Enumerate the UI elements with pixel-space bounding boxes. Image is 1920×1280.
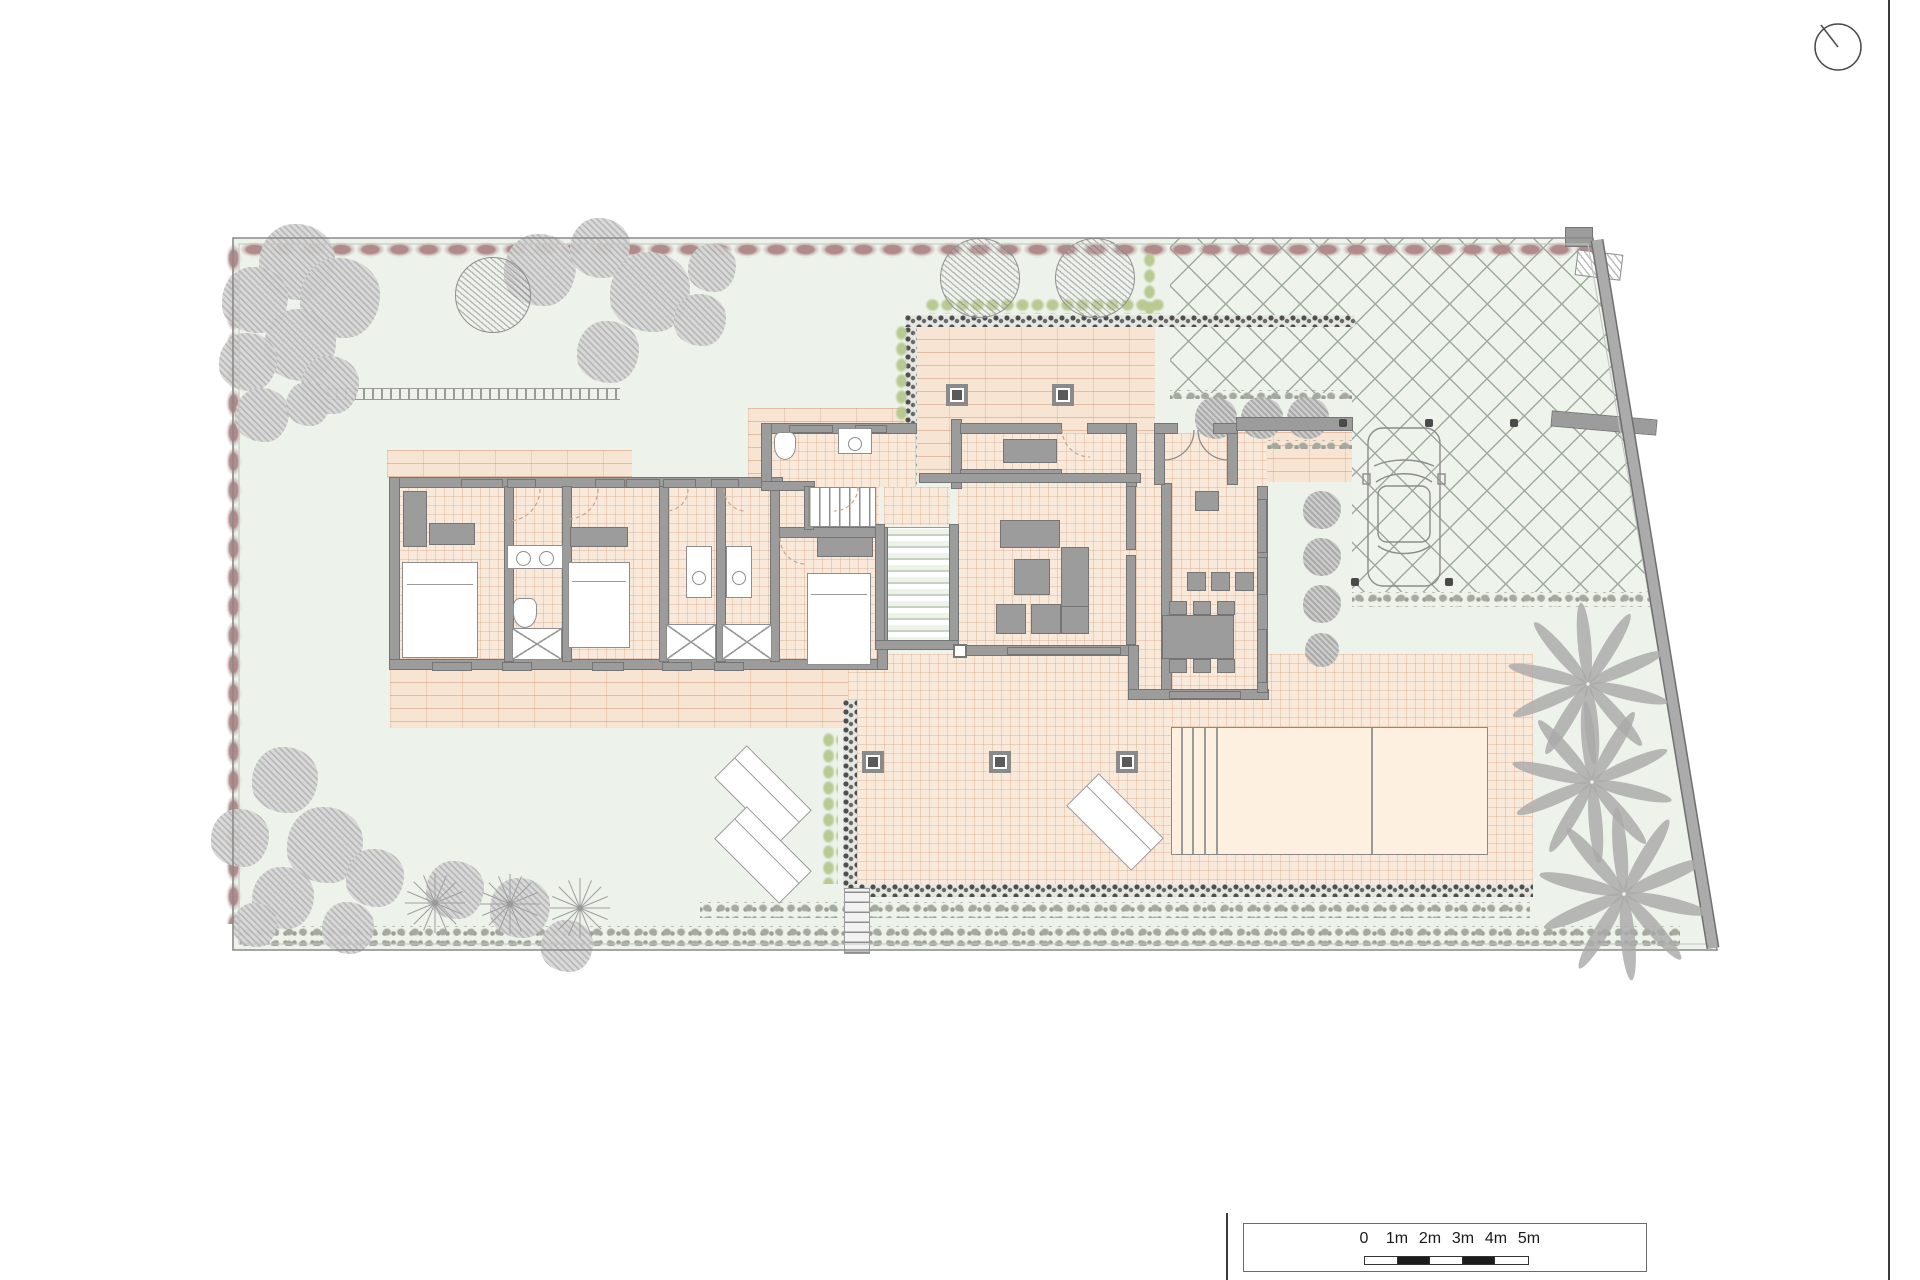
window-living-east bbox=[1127, 487, 1135, 549]
wardrobe bbox=[430, 524, 474, 544]
pool-step-line bbox=[1192, 728, 1194, 854]
wardrobe bbox=[571, 528, 627, 546]
tree-canopy bbox=[286, 382, 330, 426]
column-marker bbox=[1052, 384, 1074, 406]
pergola-fence bbox=[318, 388, 620, 400]
coffee-table bbox=[1015, 560, 1049, 594]
scale-segment bbox=[1364, 1256, 1399, 1265]
column-marker bbox=[1116, 751, 1138, 773]
pool bbox=[1171, 727, 1488, 855]
apron-west bbox=[387, 450, 632, 478]
bed bbox=[807, 573, 871, 665]
divider-wall bbox=[771, 487, 779, 661]
shrub-row-terrace bbox=[700, 902, 1530, 918]
vestibule-north-wall bbox=[1155, 424, 1177, 433]
column-marker bbox=[862, 751, 884, 773]
shrub-col-terrace bbox=[822, 732, 838, 884]
tree-canopy bbox=[233, 903, 277, 947]
post-dot bbox=[1445, 578, 1453, 586]
tree-canopy bbox=[346, 849, 404, 907]
wc-west-wall bbox=[762, 424, 771, 487]
tree-canopy bbox=[577, 321, 639, 383]
window bbox=[596, 480, 624, 487]
wing-west-wall bbox=[390, 478, 399, 669]
tree-canopy bbox=[235, 388, 289, 442]
pool-step-line bbox=[1204, 728, 1206, 854]
corner-post bbox=[953, 644, 967, 658]
tree-canopy bbox=[688, 244, 736, 292]
window bbox=[593, 663, 623, 670]
post-dot bbox=[1425, 419, 1433, 427]
post-dot bbox=[1510, 419, 1518, 427]
toilet bbox=[774, 432, 796, 460]
gravel-south bbox=[848, 884, 1533, 897]
window bbox=[663, 663, 691, 670]
hall-north-wall bbox=[961, 424, 1061, 433]
scale-segment bbox=[1494, 1256, 1529, 1265]
sink bbox=[838, 428, 872, 454]
hedge-circle bbox=[1055, 238, 1135, 318]
bed bbox=[568, 562, 630, 648]
shrub-col-drive bbox=[1143, 252, 1156, 314]
gravel-west bbox=[843, 700, 857, 890]
scale-label-5m: 5m bbox=[1518, 1230, 1540, 1248]
armchair bbox=[997, 605, 1025, 633]
hall-bench bbox=[1004, 440, 1056, 462]
pool-step-line bbox=[1181, 728, 1183, 854]
scale-segment bbox=[1462, 1256, 1497, 1265]
armchair bbox=[1062, 607, 1088, 633]
post-dot bbox=[1339, 419, 1347, 427]
scale-bar: 0 1m 2m 3m 4m 5m bbox=[1243, 1223, 1647, 1272]
shower bbox=[512, 628, 562, 660]
lightwell-east-wall bbox=[950, 525, 958, 649]
shrub-gray bbox=[1303, 538, 1341, 576]
chair bbox=[1194, 602, 1210, 614]
pool-step-line bbox=[1216, 728, 1218, 854]
window bbox=[627, 480, 659, 487]
scale-label-2m: 2m bbox=[1419, 1230, 1441, 1248]
sink bbox=[686, 546, 712, 598]
window bbox=[462, 480, 502, 487]
chair bbox=[1218, 602, 1234, 614]
scale-segment bbox=[1429, 1256, 1464, 1265]
scale-segment bbox=[1397, 1256, 1432, 1265]
shrub-gray bbox=[1305, 633, 1339, 667]
window bbox=[715, 663, 743, 670]
shrub-gray bbox=[1303, 491, 1341, 529]
tree-canopy bbox=[541, 920, 593, 972]
lightwell-south-wall bbox=[876, 641, 958, 649]
dining-table bbox=[1163, 616, 1233, 658]
window-kitchen-east bbox=[1258, 500, 1266, 552]
scale-label-4m: 4m bbox=[1485, 1230, 1507, 1248]
wardrobe bbox=[818, 538, 872, 556]
window-living-east bbox=[1127, 556, 1135, 644]
window bbox=[503, 663, 531, 670]
drive-side-wall bbox=[1237, 418, 1352, 430]
tree-canopy bbox=[211, 809, 269, 867]
shrub-row-drive bbox=[1352, 592, 1652, 607]
window bbox=[664, 480, 695, 487]
tree-canopy bbox=[426, 861, 484, 919]
vanity-double bbox=[507, 545, 563, 569]
sofa bbox=[1001, 521, 1059, 547]
stair-hall-floor bbox=[884, 487, 950, 525]
tree-canopy bbox=[490, 878, 550, 938]
kitchen-counter bbox=[1196, 492, 1218, 510]
kitchen-west-wall bbox=[1162, 484, 1171, 689]
bed3-north-wall bbox=[777, 528, 882, 537]
vestibule-east-wall bbox=[1228, 424, 1237, 484]
drawing-sheet: 0 1m 2m 3m 4m 5m bbox=[0, 0, 1920, 1280]
chair bbox=[1218, 660, 1234, 672]
vestibule-west-wall bbox=[1155, 424, 1164, 484]
tree-canopy bbox=[674, 294, 726, 346]
shrub-row-bottom bbox=[240, 926, 1680, 946]
boundary-pillar bbox=[1575, 249, 1624, 280]
shower bbox=[666, 624, 716, 660]
bed bbox=[402, 562, 478, 658]
window bbox=[712, 480, 738, 487]
scale-label-0: 0 bbox=[1360, 1230, 1369, 1248]
window-kitchen-east bbox=[1258, 558, 1266, 594]
wardrobe bbox=[404, 492, 426, 546]
column-marker bbox=[946, 384, 968, 406]
window bbox=[508, 480, 535, 487]
post-dot bbox=[1351, 578, 1359, 586]
hedge-circle bbox=[940, 238, 1020, 318]
hedge-circle bbox=[455, 257, 531, 333]
flower-border-top bbox=[240, 242, 1592, 258]
sink bbox=[726, 546, 752, 598]
titleblock-divider-line bbox=[1226, 1213, 1228, 1280]
tree-canopy bbox=[322, 902, 374, 954]
scale-label-3m: 3m bbox=[1452, 1230, 1474, 1248]
kitchen-counter bbox=[1236, 573, 1253, 590]
window-wc bbox=[790, 426, 832, 432]
glazing-hall bbox=[920, 474, 1140, 482]
pool-lane-line bbox=[1371, 728, 1373, 854]
tree-canopy bbox=[219, 333, 277, 391]
window-kitchen-south bbox=[1170, 692, 1240, 698]
sheet-frame-line bbox=[1888, 0, 1890, 1280]
shower bbox=[722, 624, 772, 660]
shrub-gray bbox=[1303, 585, 1341, 623]
chair bbox=[1194, 660, 1210, 672]
kitchen-counter bbox=[1188, 573, 1205, 590]
south-path bbox=[390, 669, 848, 728]
kitchen-counter bbox=[1212, 573, 1229, 590]
tree-canopy bbox=[252, 747, 318, 813]
gate-pillar bbox=[1566, 228, 1592, 246]
column-marker bbox=[989, 751, 1011, 773]
north-indicator-circle bbox=[1815, 24, 1861, 70]
window bbox=[433, 663, 471, 670]
chair bbox=[1170, 602, 1186, 614]
lightwell-deck bbox=[884, 527, 952, 645]
lightwell-west-wall bbox=[876, 525, 884, 649]
window-kitchen-east bbox=[1258, 630, 1266, 682]
armchair bbox=[1032, 605, 1060, 633]
terrace-steps bbox=[844, 888, 870, 954]
chair bbox=[1170, 660, 1186, 672]
sofa bbox=[1062, 548, 1088, 610]
window-living-south bbox=[1008, 648, 1120, 654]
north-indicator-needle bbox=[1821, 25, 1838, 47]
vestibule-north-wall bbox=[1214, 424, 1237, 433]
scale-label-1m: 1m bbox=[1386, 1230, 1408, 1248]
staircase bbox=[808, 487, 876, 527]
toilet bbox=[513, 598, 537, 628]
